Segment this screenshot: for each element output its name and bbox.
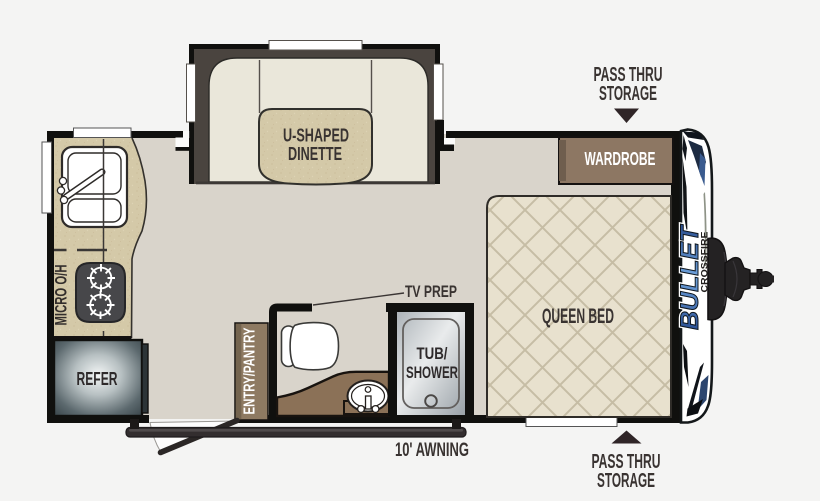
svg-text:TV PREP: TV PREP — [405, 282, 457, 301]
svg-text:DINETTE: DINETTE — [288, 143, 342, 164]
svg-text:WARDROBE: WARDROBE — [585, 149, 656, 169]
svg-text:STORAGE: STORAGE — [599, 83, 657, 105]
svg-text:REFER: REFER — [77, 368, 118, 389]
svg-text:ENTRY/PANTRY: ENTRY/PANTRY — [242, 327, 259, 414]
svg-text:TUB/: TUB/ — [417, 344, 448, 363]
svg-text:MICRO O/H: MICRO O/H — [53, 265, 71, 326]
svg-text:SHOWER: SHOWER — [406, 363, 458, 382]
svg-text:QUEEN BED: QUEEN BED — [542, 304, 614, 328]
svg-text:STORAGE: STORAGE — [597, 470, 655, 492]
svg-text:10' AWNING: 10' AWNING — [395, 440, 469, 461]
